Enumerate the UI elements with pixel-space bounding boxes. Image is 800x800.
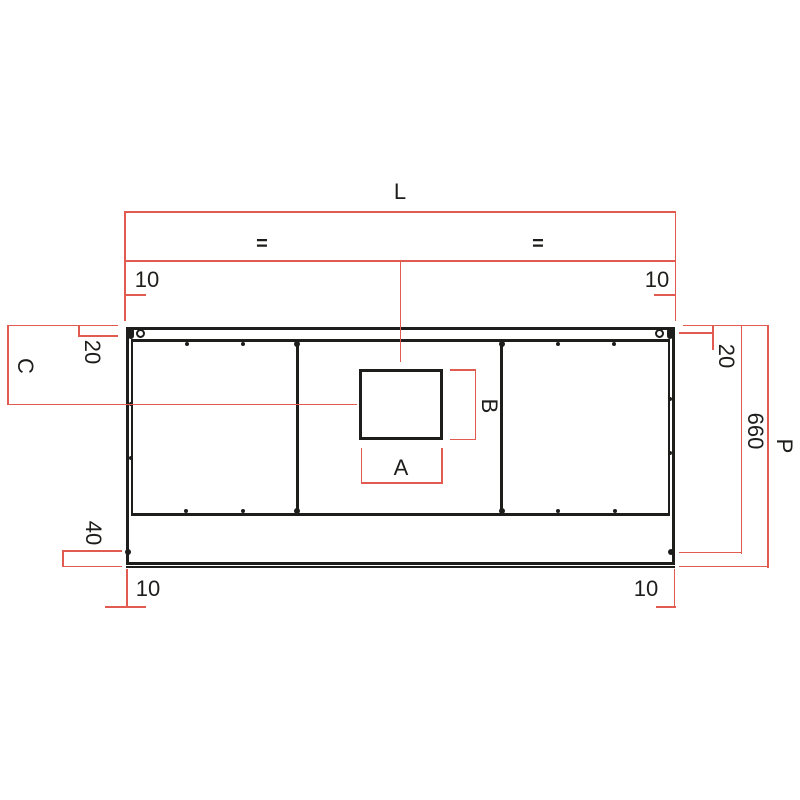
- divider-left: [296, 342, 299, 514]
- label-20-right: 20: [715, 344, 737, 368]
- label-C: C: [14, 358, 36, 374]
- dim-660-bottom-ext: [679, 552, 742, 554]
- front-edge-line: [126, 566, 675, 568]
- dim-line-L: [124, 211, 676, 213]
- dim-A-line: [361, 482, 443, 484]
- label-P: P: [773, 439, 795, 454]
- dim-ext-L-left: [124, 211, 126, 321]
- dim-A-right-tick: [441, 448, 443, 483]
- fixing-ring-right: [655, 329, 664, 338]
- dim-20-right-line: [679, 332, 713, 334]
- dim-B-bottom: [450, 439, 476, 441]
- label-B: B: [478, 399, 500, 414]
- divider-dot: [294, 508, 300, 514]
- dim-A-left-tick: [361, 448, 363, 483]
- dim-C-leader-line: [7, 404, 357, 406]
- cabinet-outline: [126, 327, 675, 565]
- fixing-dot: [241, 342, 245, 346]
- label-660: 660: [744, 413, 766, 450]
- label-10-bottom-right: 10: [634, 578, 658, 600]
- dim-P-bottom-ext: [679, 566, 769, 568]
- label-equal-right: =: [532, 234, 544, 254]
- bottom-panel-line: [131, 513, 670, 516]
- corner-dot-bottom-right: [668, 549, 674, 555]
- fixing-dot: [241, 509, 245, 513]
- divider-dot: [294, 341, 300, 347]
- dimension-drawing-canvas: L = = 10 10 C 20 20 B A 40 10 10 660 P: [0, 0, 800, 800]
- corner-dot-bottom-left: [125, 549, 131, 555]
- fixing-dot: [612, 342, 616, 346]
- dim-40-top-tick: [62, 550, 122, 552]
- divider-right: [500, 342, 503, 514]
- dim-tick-10-top-right: [654, 294, 676, 296]
- fixing-dot: [556, 342, 560, 346]
- dim-C-top-line: [7, 325, 118, 327]
- label-40: 40: [82, 521, 104, 545]
- dim-10-bottom-right-tick: [656, 606, 676, 608]
- fixing-dot: [668, 451, 672, 455]
- dim-20-left-line: [78, 335, 118, 337]
- fixing-dot: [556, 509, 560, 513]
- label-10-top-right: 10: [645, 269, 669, 291]
- dim-660-vertical: [741, 325, 743, 554]
- divider-dot: [499, 508, 505, 514]
- dim-10-bottom-right-ext: [674, 569, 676, 608]
- fixing-dot: [129, 456, 133, 460]
- fixing-ring-left: [136, 329, 145, 338]
- label-equal-left: =: [256, 234, 268, 254]
- divider-dot: [499, 341, 505, 347]
- dim-tick-10-top-left: [124, 294, 146, 296]
- label-10-top-left: 10: [135, 269, 159, 291]
- dim-B-vertical: [475, 369, 477, 440]
- dim-10-bottom-left-ext: [126, 569, 128, 608]
- dim-40-vertical: [62, 550, 64, 567]
- label-10-bottom-left: 10: [136, 578, 160, 600]
- label-total-length: L: [394, 181, 406, 203]
- dim-P-top-ext: [683, 325, 769, 327]
- corner-fitting-left: [128, 328, 134, 339]
- dim-B-top: [450, 369, 476, 371]
- fixing-dot: [668, 397, 672, 401]
- dim-ext-L-right: [675, 211, 677, 321]
- left-inner-line: [131, 342, 133, 514]
- dim-10-bottom-left-tick: [105, 606, 146, 608]
- dim-40-bottom-tick: [62, 566, 122, 568]
- right-inner-line: [668, 342, 670, 514]
- label-A: A: [394, 457, 409, 479]
- cutout-rectangle: [359, 369, 443, 440]
- fixing-dot: [184, 509, 188, 513]
- label-20-left: 20: [81, 340, 103, 364]
- fixing-dot: [185, 342, 189, 346]
- corner-fitting-right: [667, 328, 673, 339]
- fixing-dot: [613, 509, 617, 513]
- dim-C-vertical: [7, 325, 9, 405]
- centerline-vertical: [400, 260, 402, 362]
